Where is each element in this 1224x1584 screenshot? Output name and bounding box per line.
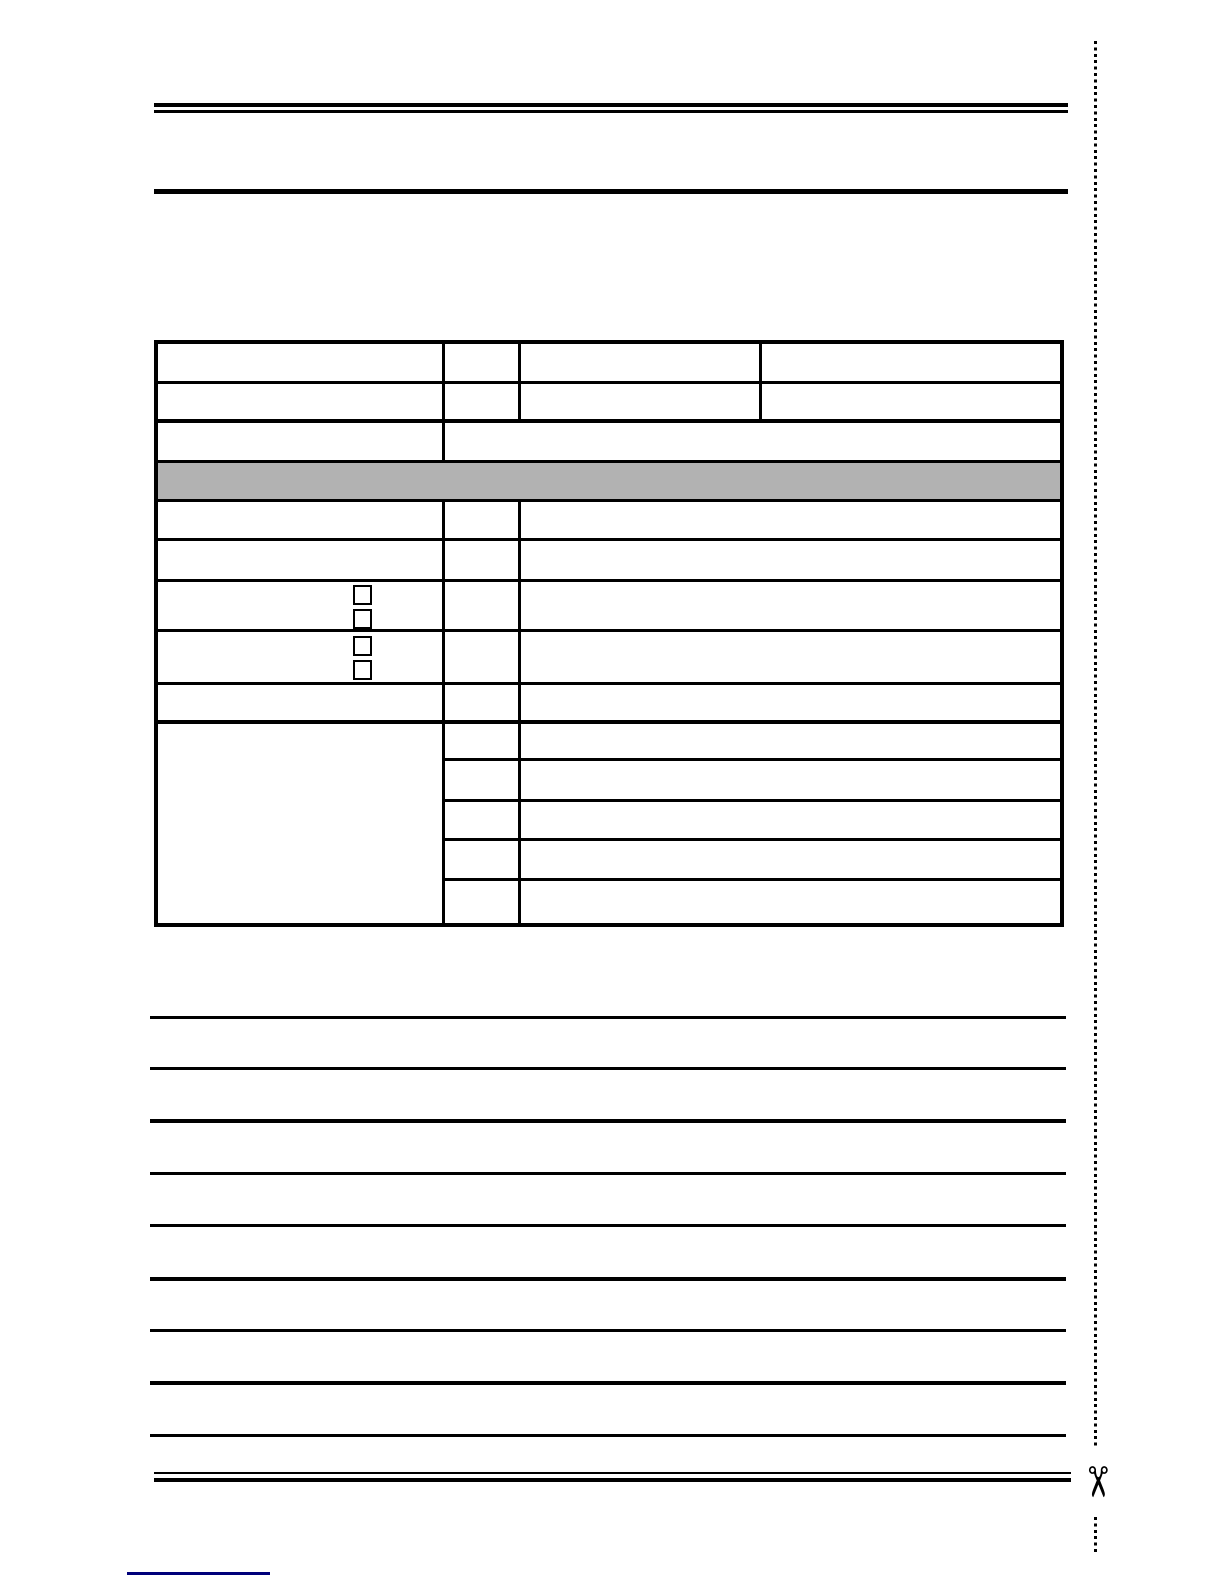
table-gridline bbox=[158, 579, 1060, 582]
table-gridline bbox=[158, 460, 1060, 463]
checkbox[interactable] bbox=[353, 636, 372, 656]
scissors-icon: ✂ bbox=[1074, 1459, 1120, 1505]
table-gridline bbox=[518, 344, 521, 419]
table-gridline bbox=[158, 419, 1060, 423]
table-gridline bbox=[158, 682, 1060, 685]
checkbox[interactable] bbox=[353, 585, 372, 605]
checkbox[interactable] bbox=[353, 609, 372, 629]
cut-line bbox=[1094, 1517, 1097, 1553]
table-gridline bbox=[158, 629, 1060, 632]
form-table bbox=[154, 340, 1064, 927]
scissors-glyph: ✂ bbox=[1076, 1464, 1118, 1499]
header-divider-rule bbox=[154, 189, 1068, 194]
table-gridline bbox=[442, 344, 445, 460]
table-gridline bbox=[442, 838, 1060, 841]
top-double-rule bbox=[154, 103, 1068, 113]
writing-line bbox=[150, 1172, 1066, 1175]
table-gridline bbox=[442, 758, 1060, 761]
writing-line bbox=[150, 1277, 1066, 1281]
writing-line bbox=[150, 1224, 1066, 1227]
checkbox[interactable] bbox=[353, 660, 372, 680]
page: ✂ bbox=[0, 0, 1224, 1584]
footnote-rule bbox=[127, 1572, 270, 1575]
table-gridline bbox=[158, 720, 1060, 724]
writing-line bbox=[150, 1016, 1066, 1019]
table-gridline bbox=[158, 381, 1060, 384]
writing-line bbox=[150, 1119, 1066, 1123]
table-gridline bbox=[442, 878, 1060, 881]
cut-line bbox=[1094, 41, 1097, 1449]
writing-line bbox=[150, 1381, 1066, 1385]
table-gridline bbox=[759, 344, 762, 419]
writing-line bbox=[150, 1329, 1066, 1332]
table-gridline bbox=[442, 799, 1060, 802]
writing-line bbox=[150, 1434, 1066, 1437]
table-banner-row bbox=[158, 460, 1060, 501]
writing-line bbox=[150, 1067, 1066, 1070]
table-gridline bbox=[158, 499, 1060, 502]
table-gridline bbox=[158, 538, 1060, 541]
table-gridline bbox=[442, 499, 445, 923]
table-gridline bbox=[518, 499, 521, 923]
footer-double-rule bbox=[154, 1472, 1071, 1482]
